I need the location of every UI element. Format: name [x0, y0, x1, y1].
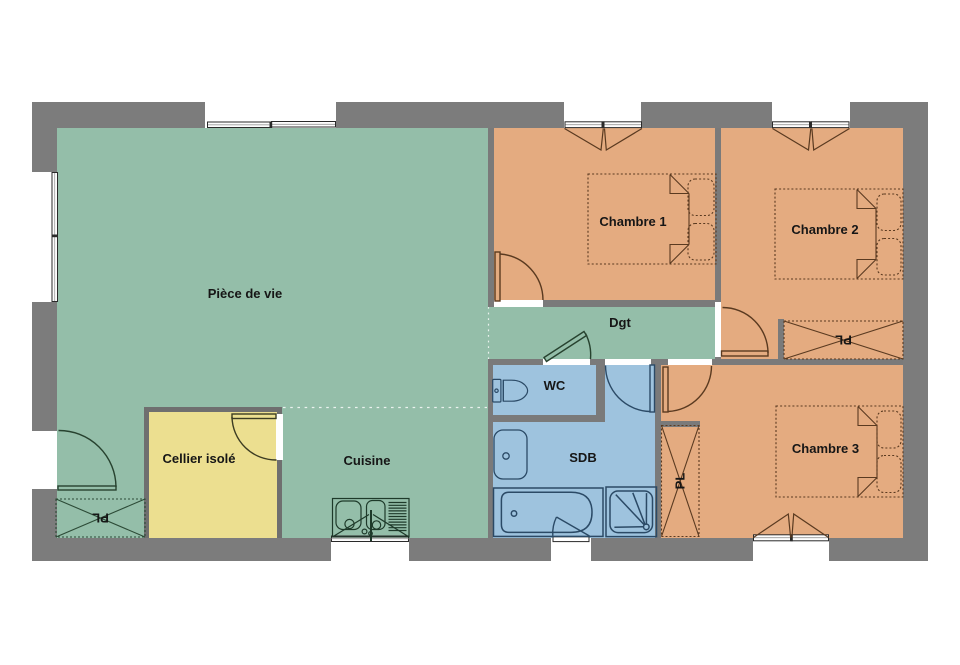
svg-text:Chambre 3: Chambre 3 — [792, 441, 859, 456]
svg-text:PL: PL — [835, 333, 852, 348]
svg-text:Dgt: Dgt — [609, 315, 631, 330]
svg-text:Cuisine: Cuisine — [344, 453, 391, 468]
svg-text:SDB: SDB — [569, 450, 596, 465]
svg-text:PL: PL — [673, 473, 688, 490]
svg-text:Cellier isolé: Cellier isolé — [163, 451, 236, 466]
svg-text:PL: PL — [92, 511, 109, 526]
svg-text:Pièce de vie: Pièce de vie — [208, 286, 282, 301]
svg-text:Chambre 2: Chambre 2 — [791, 222, 858, 237]
svg-text:Chambre 1: Chambre 1 — [599, 214, 666, 229]
svg-text:WC: WC — [544, 378, 566, 393]
